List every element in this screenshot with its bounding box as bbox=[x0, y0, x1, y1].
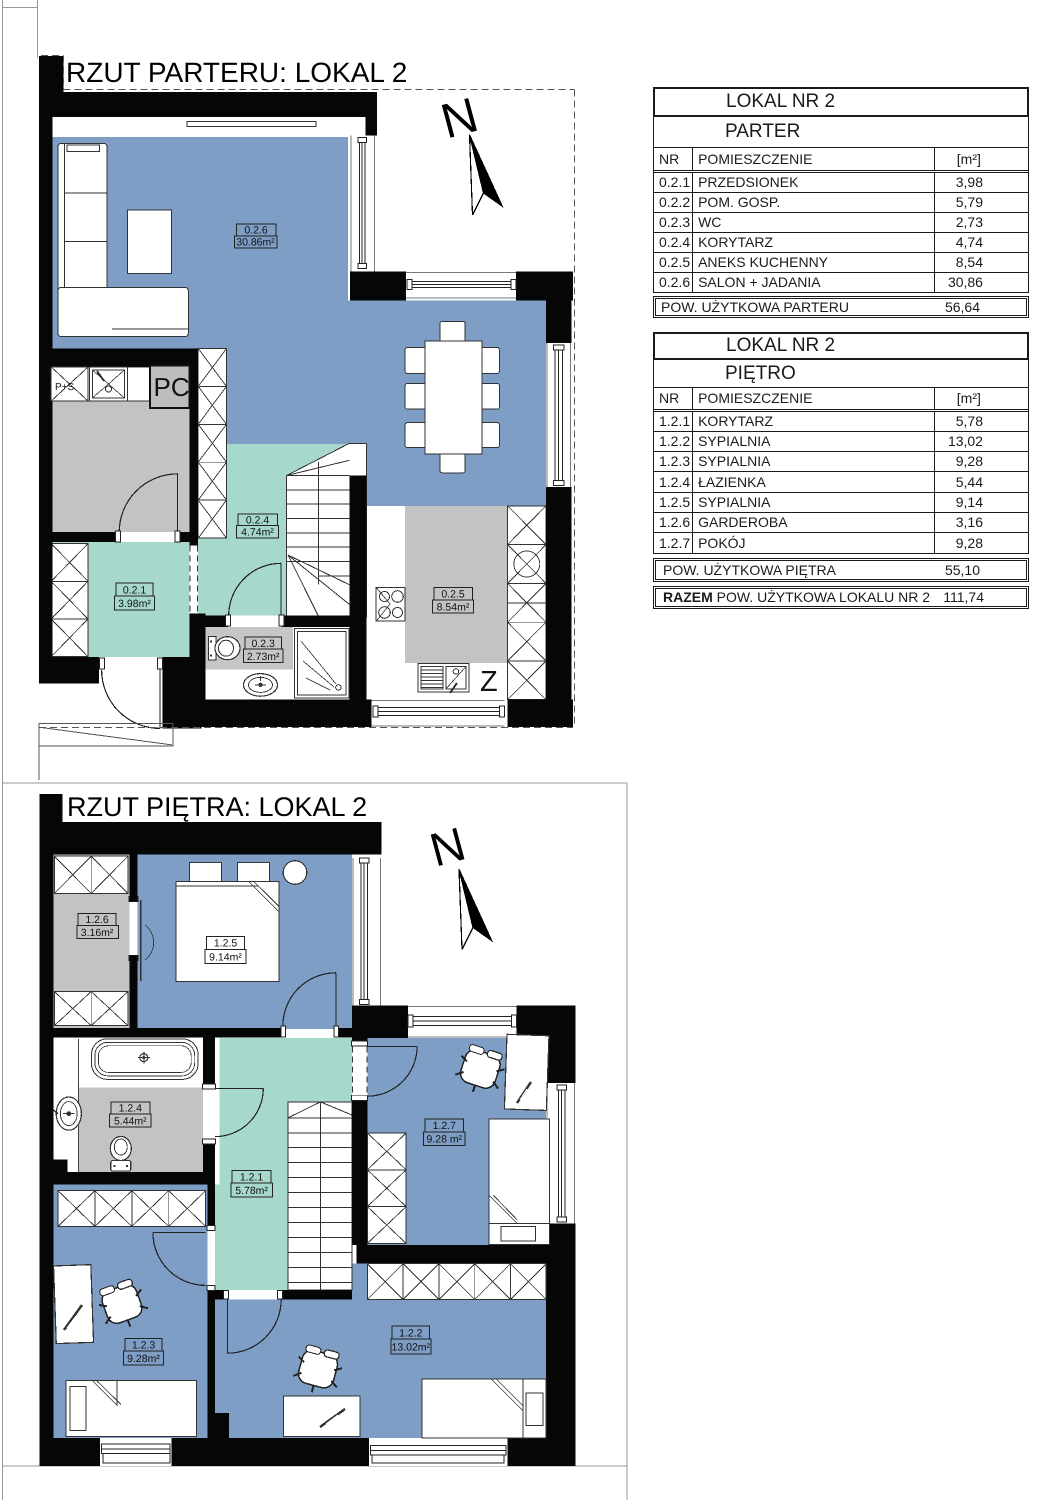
svg-text:1.2.2: 1.2.2 bbox=[399, 1327, 423, 1339]
svg-text:9.28 m²: 9.28 m² bbox=[426, 1134, 462, 1146]
svg-text:0.2.4: 0.2.4 bbox=[246, 514, 270, 526]
svg-text:5.44m²: 5.44m² bbox=[114, 1115, 147, 1127]
svg-text:30.86m²: 30.86m² bbox=[236, 237, 275, 249]
svg-text:N: N bbox=[436, 88, 484, 149]
svg-text:1.2.4: 1.2.4 bbox=[119, 1103, 143, 1115]
svg-text:3.98m²: 3.98m² bbox=[118, 598, 151, 610]
svg-text:3.16m²: 3.16m² bbox=[81, 927, 114, 939]
svg-text:N: N bbox=[424, 816, 471, 876]
svg-text:RZUT PARTERU: LOKAL 2: RZUT PARTERU: LOKAL 2 bbox=[66, 57, 407, 88]
svg-text:1.2.5: 1.2.5 bbox=[214, 938, 238, 950]
svg-text:0.2.3: 0.2.3 bbox=[252, 638, 276, 650]
svg-text:1.2.7: 1.2.7 bbox=[433, 1120, 457, 1132]
svg-text:RZUT PIĘTRA: LOKAL 2: RZUT PIĘTRA: LOKAL 2 bbox=[67, 792, 367, 822]
svg-text:PC: PC bbox=[154, 372, 190, 402]
svg-text:0.2.6: 0.2.6 bbox=[244, 225, 268, 237]
svg-text:2.73m²: 2.73m² bbox=[247, 651, 280, 663]
svg-text:13.02m²: 13.02m² bbox=[392, 1342, 431, 1354]
svg-text:5.78m²: 5.78m² bbox=[235, 1185, 268, 1197]
svg-text:4.74m²: 4.74m² bbox=[241, 527, 274, 539]
svg-text:8.54m²: 8.54m² bbox=[437, 602, 470, 614]
svg-text:0.2.1: 0.2.1 bbox=[123, 584, 147, 596]
svg-text:9.14m²: 9.14m² bbox=[209, 951, 242, 963]
svg-text:0.2.5: 0.2.5 bbox=[441, 589, 465, 601]
svg-text:1.2.6: 1.2.6 bbox=[85, 914, 109, 926]
svg-text:1.2.3: 1.2.3 bbox=[132, 1339, 156, 1351]
svg-text:P+S: P+S bbox=[55, 382, 75, 393]
svg-text:9.28m²: 9.28m² bbox=[127, 1353, 160, 1365]
svg-text:1.2.1: 1.2.1 bbox=[240, 1171, 264, 1183]
svg-text:Z: Z bbox=[480, 666, 498, 698]
